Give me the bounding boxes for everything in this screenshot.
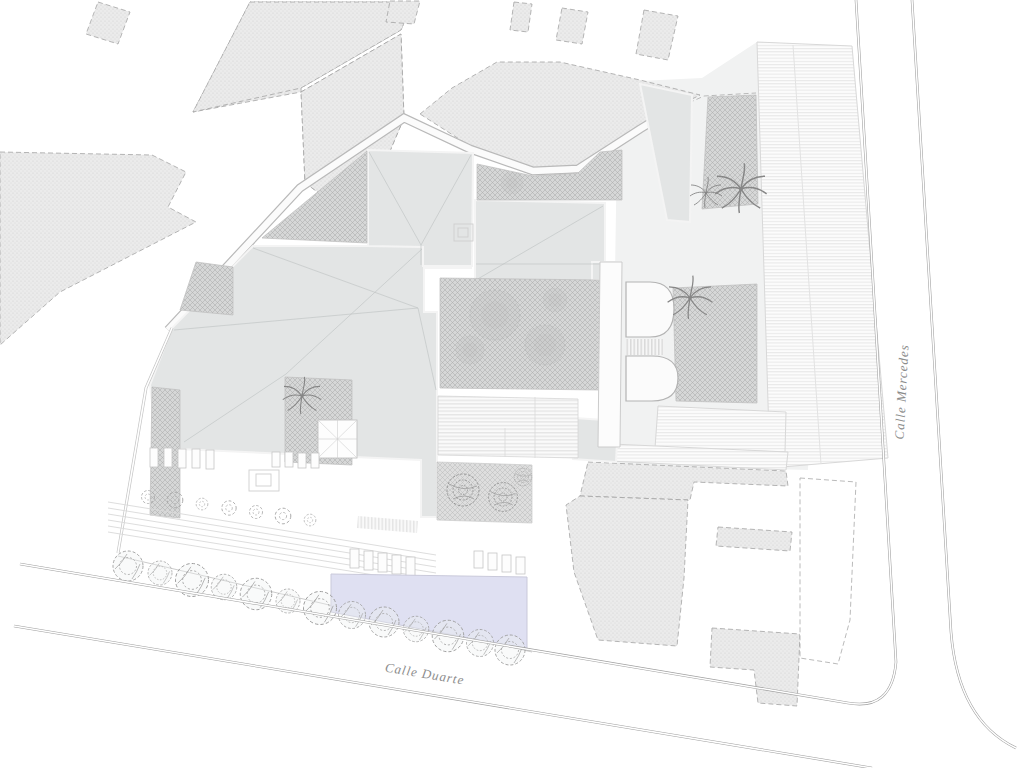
garden-south <box>437 462 532 523</box>
deck-grille <box>357 516 418 533</box>
sun-loungers-row-2 <box>474 551 525 574</box>
neighbor-parcels-southeast <box>566 462 856 706</box>
stair-terrace <box>438 396 578 458</box>
sun-loungers-row-1 <box>350 549 415 576</box>
courtyard-west-small <box>180 262 233 315</box>
calle-mercedes-right-edge <box>912 0 1016 748</box>
courtyard-east <box>673 284 757 403</box>
site-plan-drawing: Calle Duarte Calle Mercedes <box>0 0 1024 768</box>
street-label-calle-duarte: Calle Duarte <box>384 660 466 688</box>
b-staircase <box>626 339 664 355</box>
skylight <box>318 420 357 458</box>
street-label-calle-mercedes: Calle Mercedes <box>892 344 912 440</box>
courtyard-central <box>440 278 600 390</box>
